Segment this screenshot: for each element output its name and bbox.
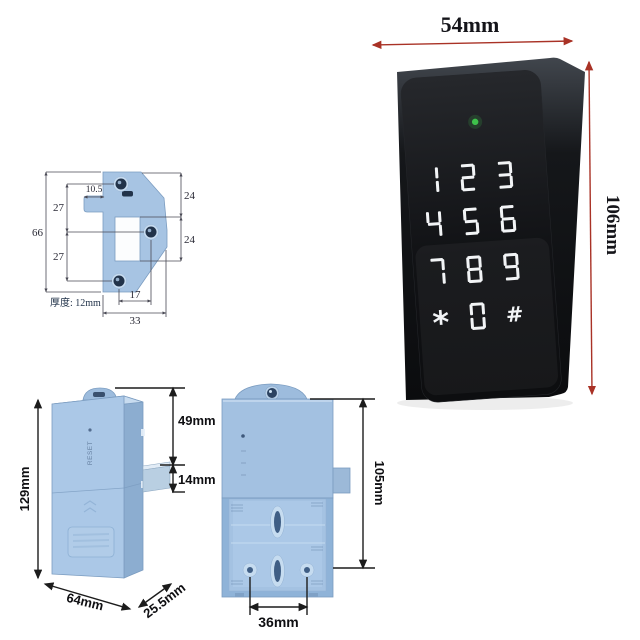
strike-plate-slot <box>122 191 133 197</box>
thickness-note: 厚度: 12mm <box>50 296 101 309</box>
strike-plate-hole-bottom <box>112 274 127 289</box>
back-top-ear <box>235 384 307 400</box>
battery-slot-upper <box>271 506 285 538</box>
lock-body-side-view: 129mm RESET <box>5 378 233 640</box>
dim-label-105mm: 105mm <box>372 461 387 506</box>
lock-body-back-view: 105mm 36mm <box>205 375 410 640</box>
back-upper-cover <box>222 399 333 498</box>
screw-hole-right <box>300 563 314 577</box>
strike-plate-diagram: 66 27 27 10.5 24 24 <box>20 140 245 335</box>
dim-label-27-upper: 27 <box>53 202 65 214</box>
strike-plate-hole-top <box>114 177 129 192</box>
dim-body-width: 64mm <box>45 584 130 613</box>
side-notch-upper <box>141 429 145 436</box>
latch-tongue <box>143 462 170 492</box>
dim-label-10-5: 10.5 <box>86 185 103 195</box>
keypad-front-face: *# <box>400 69 562 403</box>
back-latch-stub <box>333 468 350 493</box>
dim-label-54mm: 54mm <box>441 12 500 37</box>
dim-label-36mm: 36mm <box>258 614 298 630</box>
product-dimension-sheet: 66 27 27 10.5 24 24 <box>0 0 640 640</box>
dim-label-129mm: 129mm <box>17 467 32 512</box>
reset-label: RESET <box>87 441 94 465</box>
foot-right <box>309 593 318 597</box>
dim-body-height: 129mm <box>17 400 38 578</box>
strike-plate-hole-middle <box>144 225 159 240</box>
key-star: * <box>431 303 451 342</box>
dim-label-33: 33 <box>130 315 142 327</box>
dim-label-17: 17 <box>130 289 142 301</box>
dim-label-66: 66 <box>32 227 44 239</box>
battery-compartment <box>222 498 333 597</box>
key-hash: # <box>505 302 524 327</box>
foot-left <box>235 593 244 597</box>
dim-label-27-lower: 27 <box>53 251 65 263</box>
dim-label-106mm: 106mm <box>602 195 623 255</box>
dim-keypad-height: 106mm <box>589 62 623 394</box>
battery-slot-lower <box>271 555 285 587</box>
screw-hole-left <box>243 563 257 577</box>
strike-plate-window <box>115 217 140 261</box>
dim-label-24-upper: 24 <box>184 190 196 202</box>
reset-dot <box>88 428 91 431</box>
dim-body-depth: 25.5mm <box>139 580 188 621</box>
dim-label-64mm: 64mm <box>65 590 105 614</box>
emboss-label-plate <box>68 527 114 557</box>
dim-keypad-width: 54mm <box>373 12 572 45</box>
keypad-photo: 54mm 106mm *# <box>360 0 640 420</box>
back-reset-dot <box>241 434 245 438</box>
dim-tab-width: 10.5 <box>84 185 104 197</box>
dim-label-24-lower: 24 <box>184 234 196 246</box>
